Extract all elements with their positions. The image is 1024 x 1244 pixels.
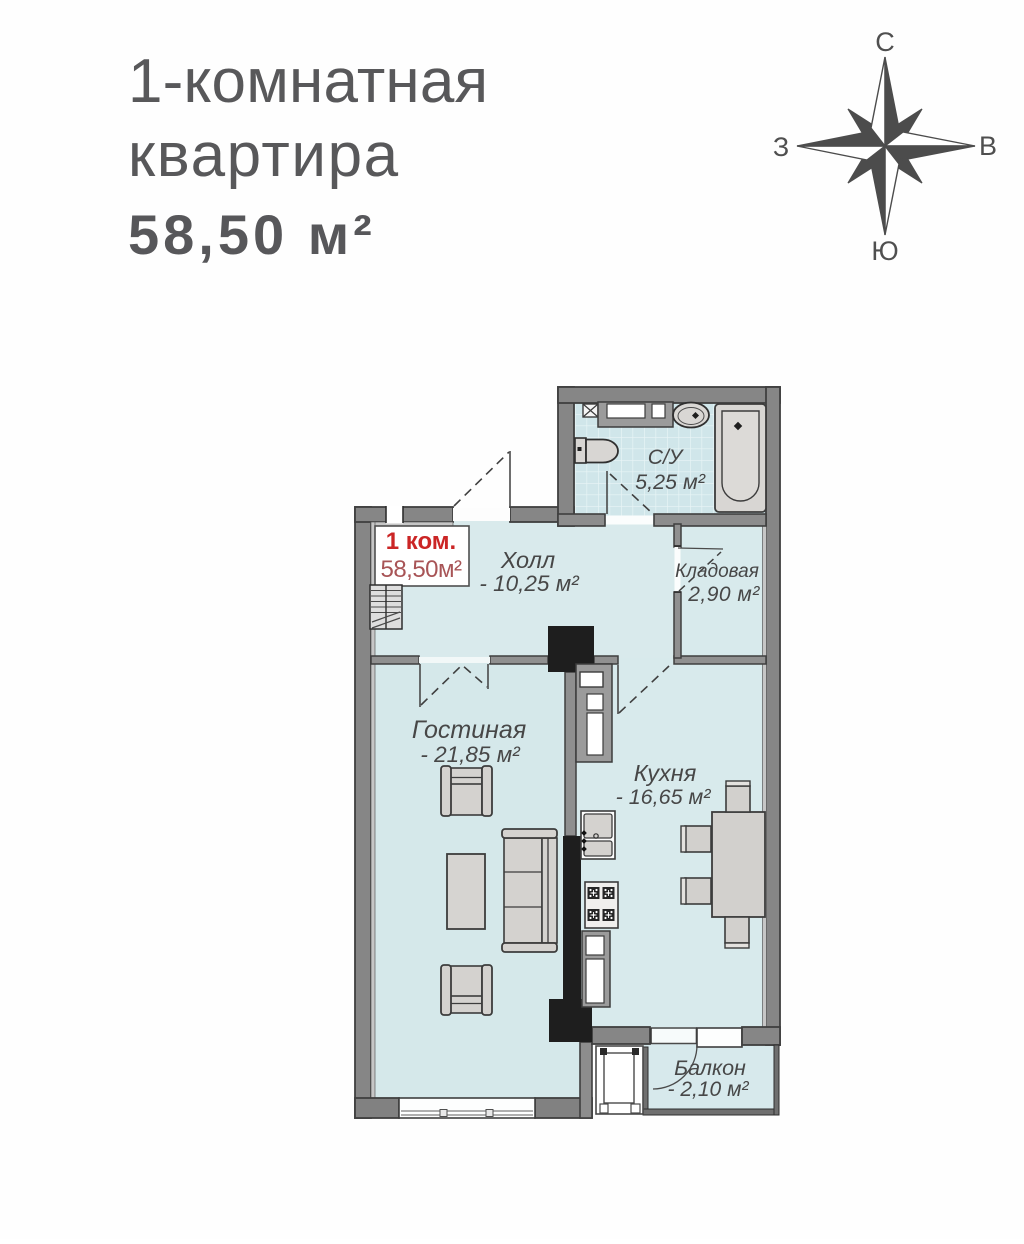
svg-text:С: С [875, 27, 895, 57]
svg-text:- 2,10 м²: - 2,10 м² [668, 1078, 750, 1101]
svg-text:1 ком.: 1 ком. [386, 528, 456, 555]
svg-text:Балкон: Балкон [674, 1056, 746, 1080]
svg-text:- 21,85 м²: - 21,85 м² [420, 742, 521, 767]
svg-text:- 10,25 м²: - 10,25 м² [479, 571, 580, 596]
svg-text:Гостиная: Гостиная [412, 716, 526, 744]
svg-text:- 16,65 м²: - 16,65 м² [616, 785, 712, 809]
svg-text:В: В [979, 131, 997, 161]
svg-text:58,50м²: 58,50м² [380, 556, 462, 583]
svg-text:5,25 м²: 5,25 м² [635, 470, 706, 494]
svg-text:1-комнатная: 1-комнатная [128, 47, 488, 116]
svg-text:С/У: С/У [648, 446, 685, 469]
svg-text:Кухня: Кухня [634, 760, 697, 786]
svg-text:Холл: Холл [500, 547, 555, 573]
svg-text:2,90 м²: 2,90 м² [687, 583, 760, 606]
svg-text:квартира: квартира [128, 121, 400, 190]
svg-text:Ю: Ю [871, 236, 898, 266]
svg-text:З: З [773, 132, 789, 162]
svg-text:Кладовая: Кладовая [675, 561, 759, 582]
svg-text:58,50 м²: 58,50 м² [128, 203, 376, 266]
